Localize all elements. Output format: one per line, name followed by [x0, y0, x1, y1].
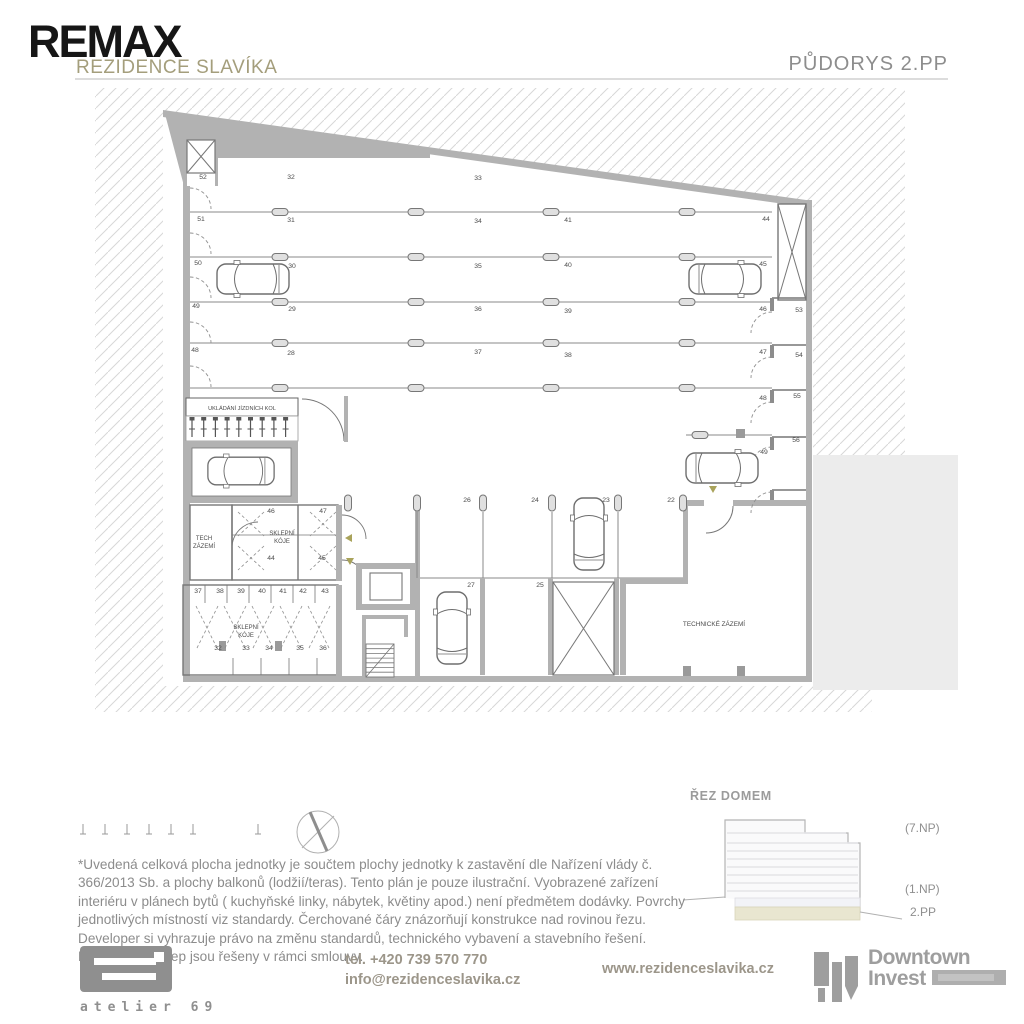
plan-label: 39 — [564, 308, 572, 315]
plan-label: 36 — [474, 306, 482, 313]
plan-label: 43 — [321, 588, 329, 595]
plan-label: 35 — [296, 645, 304, 652]
plan-label: 50 — [194, 260, 202, 267]
car-icon — [689, 261, 761, 298]
plan-label: 28 — [287, 350, 295, 357]
plan-label: 24 — [531, 497, 539, 504]
page: REMAX REZIDENCE SLAVÍKA PŮDORYS 2.PP — [0, 0, 1024, 1024]
plan-label: 27 — [467, 582, 475, 589]
developer-line2: Invest — [868, 967, 926, 990]
plan-label: 22 — [667, 497, 675, 504]
plan-label: 45 — [318, 555, 326, 562]
right-rooms — [770, 298, 806, 503]
developer-line1: Downtown — [868, 948, 1006, 969]
neighbour-building — [813, 455, 958, 690]
column-capsules — [272, 209, 708, 512]
plan-label: 38 — [216, 588, 224, 595]
current-floor-highlight — [735, 907, 860, 920]
north-compass-icon — [297, 811, 339, 853]
atelier69-logo-icon — [80, 946, 172, 992]
plan-label: 30 — [288, 263, 296, 270]
plan-label: 48 — [191, 347, 199, 354]
plan-label: 55 — [793, 393, 801, 400]
car-icon — [434, 592, 471, 664]
email-address[interactable]: info@rezidenceslavika.cz — [345, 971, 520, 991]
plan-label: 49 — [192, 303, 200, 310]
plan-label: 47 — [319, 508, 327, 515]
plan-label: 31 — [287, 217, 295, 224]
plan-label: 37 — [474, 349, 482, 356]
floor-label-2pp: 2.PP — [910, 905, 936, 919]
developer-badge — [932, 970, 1006, 985]
plan-label: 26 — [463, 497, 471, 504]
contact-block: tel. +420 739 570 770 info@rezidenceslav… — [345, 951, 520, 990]
floor-label-1np: (1.NP) — [905, 882, 940, 896]
plan-label: 49 — [760, 449, 768, 456]
plan-label: 32 — [214, 645, 222, 652]
plan-label: 44 — [762, 216, 770, 223]
plan-label: 38 — [564, 352, 572, 359]
car-icon — [686, 450, 758, 487]
downtown-invest-icon — [814, 948, 860, 1004]
shaft-top-right-icon — [778, 204, 806, 300]
bike-storage — [186, 396, 348, 442]
plan-label: ZÁZEMÍ — [193, 543, 215, 550]
plan-label: 37 — [194, 588, 202, 595]
plan-label: 34 — [474, 218, 482, 225]
website-url[interactable]: www.rezidenceslavika.cz — [602, 961, 774, 977]
plan-label: 47 — [759, 349, 767, 356]
column — [736, 429, 745, 438]
plan-label: 41 — [564, 217, 572, 224]
plan-label: 34 — [265, 645, 273, 652]
plan-label: 23 — [602, 497, 610, 504]
building-section-drawing — [683, 820, 902, 920]
developer-name: Downtown Invest — [868, 948, 1006, 989]
outer-walls — [163, 110, 812, 682]
plan-label: TECH — [196, 536, 212, 542]
section-title: ŘEZ DOMEM — [690, 789, 772, 803]
plan-label: KÓJE — [238, 632, 254, 639]
ramp-icon — [553, 582, 614, 675]
phone-number: tel. +420 739 570 770 — [345, 951, 520, 971]
plan-label: UKLÁDÁNÍ JÍZDNÍCH KOL — [208, 405, 276, 412]
floor-label-7np: (7.NP) — [905, 821, 940, 835]
plan-label: 45 — [759, 261, 767, 268]
plan-label: KÓJE — [274, 538, 290, 545]
technical-room — [620, 500, 806, 675]
plan-label: 25 — [536, 582, 544, 589]
studio-logo: atelier 69 — [80, 946, 230, 1015]
plan-label: 48 — [759, 395, 767, 402]
plan-label: 33 — [242, 645, 250, 652]
car-icon — [208, 454, 274, 488]
plan-label: 52 — [199, 174, 207, 181]
plan-label: SKLEPNÍ — [269, 530, 295, 537]
plan-label: 32 — [287, 174, 295, 181]
plan-label: 40 — [564, 262, 572, 269]
plan-label: 33 — [474, 175, 482, 182]
plan-label: 51 — [197, 216, 205, 223]
plan-label: 53 — [795, 307, 803, 314]
stairs-icon — [366, 644, 394, 677]
plan-label: TECHNICKÉ ZÁZEMÍ — [683, 619, 745, 628]
plan-label: 46 — [267, 508, 275, 515]
plan-label: 42 — [299, 588, 307, 595]
plan-label: 56 — [792, 437, 800, 444]
plan-label: 44 — [267, 555, 275, 562]
plan-label: SKLEPNÍ — [233, 624, 259, 631]
core-elevator-stairs — [336, 505, 420, 677]
plan-label: 29 — [288, 306, 296, 313]
plan-label: 39 — [237, 588, 245, 595]
plan-label: 36 — [319, 645, 327, 652]
car-icon — [217, 261, 289, 298]
developer-logo: Downtown Invest — [814, 948, 1006, 1004]
car-icon — [571, 498, 608, 570]
plan-label: 40 — [258, 588, 266, 595]
plan-label: 41 — [279, 588, 287, 595]
plan-label: 46 — [759, 306, 767, 313]
plan-label: 54 — [795, 352, 803, 359]
scale-bar-icon — [80, 824, 261, 834]
plan-label: 35 — [474, 263, 482, 270]
studio-name: atelier 69 — [80, 1000, 230, 1015]
